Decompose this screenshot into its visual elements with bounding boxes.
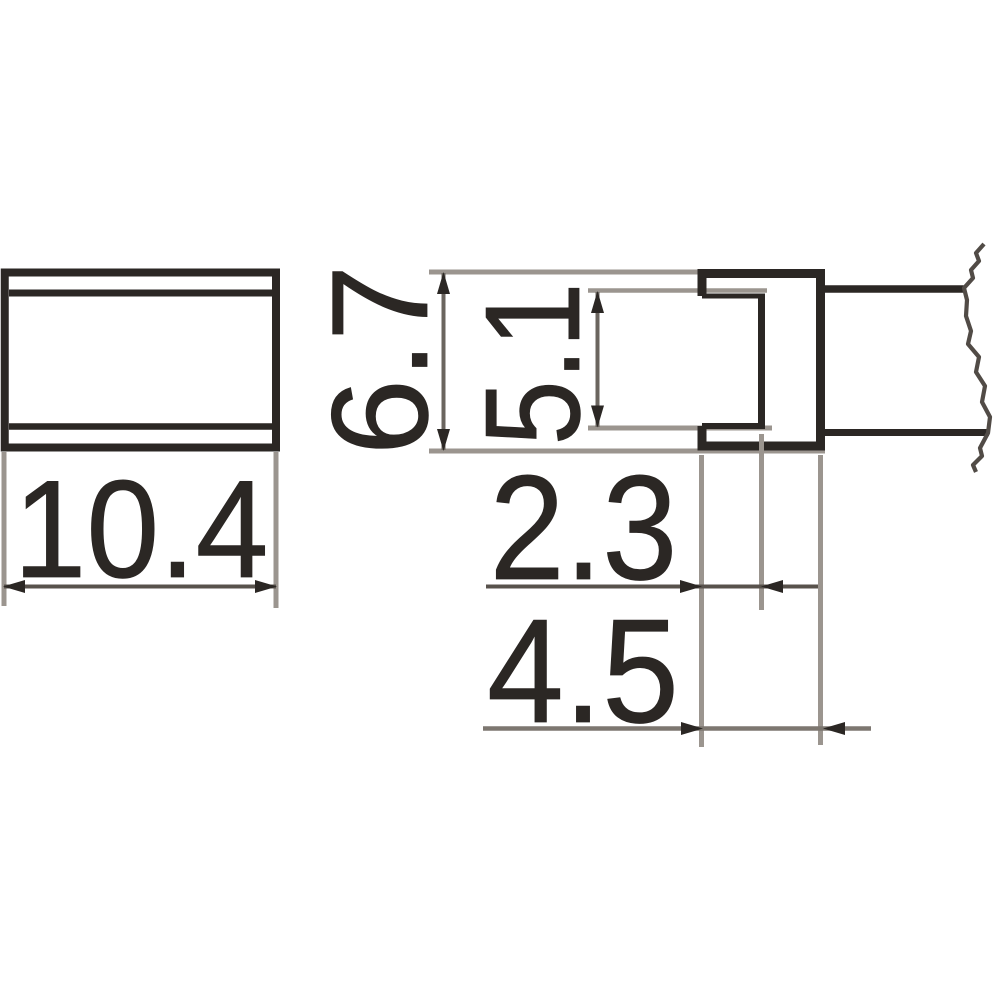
svg-text:2.3: 2.3 <box>490 444 678 611</box>
svg-text:10.4: 10.4 <box>14 452 269 607</box>
svg-text:4.5: 4.5 <box>487 589 679 754</box>
svg-text:5.1: 5.1 <box>457 283 608 446</box>
svg-text:6.7: 6.7 <box>304 265 457 455</box>
